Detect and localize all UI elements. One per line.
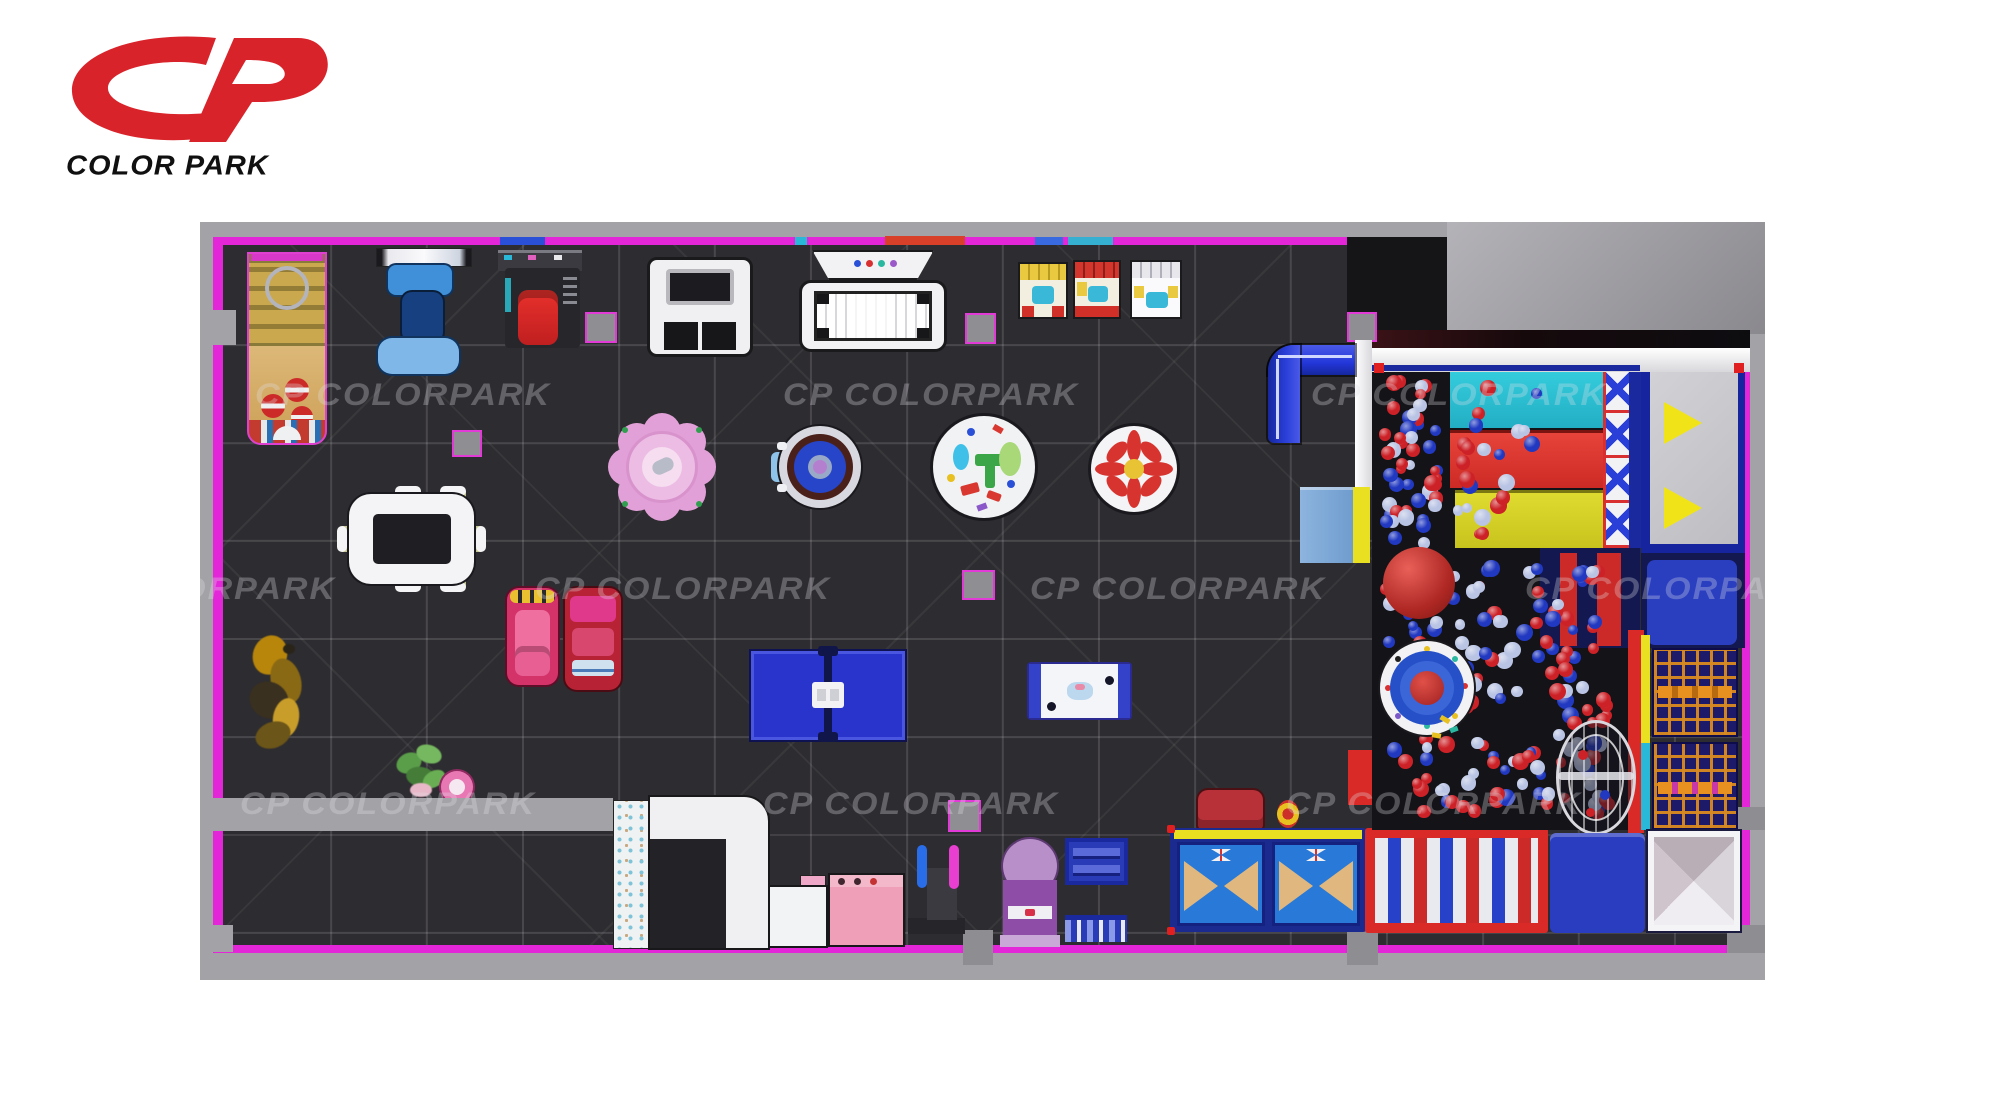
watermark-text: CP COLORPARK <box>763 787 1059 823</box>
watermark-text: CP COLORPARK <box>535 572 831 608</box>
logo-wordmark: COLOR PARK <box>66 151 269 182</box>
watermark-text: CP COLORPARK <box>1311 378 1607 414</box>
watermark-text: CP COLORPARK <box>1525 572 1765 608</box>
cp-monogram-icon <box>64 34 332 146</box>
catalog-page: COLOR PARK <box>0 0 2000 1111</box>
watermark-text: CP COLORPARK <box>1030 572 1326 608</box>
color-park-logo: COLOR PARK <box>64 34 334 184</box>
watermark-text: CP COLORPARK <box>255 378 551 414</box>
watermark-text: CP COLORPARK <box>240 787 536 823</box>
watermark-text: CP COLORPARK <box>200 572 336 608</box>
watermark-text: CP COLORPARK <box>1286 787 1582 823</box>
watermark-text: CP COLORPARK <box>783 378 1079 414</box>
watermark-layer: CP COLORPARKCP COLORPARKCP COLORPARKCP C… <box>200 222 1765 980</box>
floor-plan: CP COLORPARKCP COLORPARKCP COLORPARKCP C… <box>200 222 1765 980</box>
